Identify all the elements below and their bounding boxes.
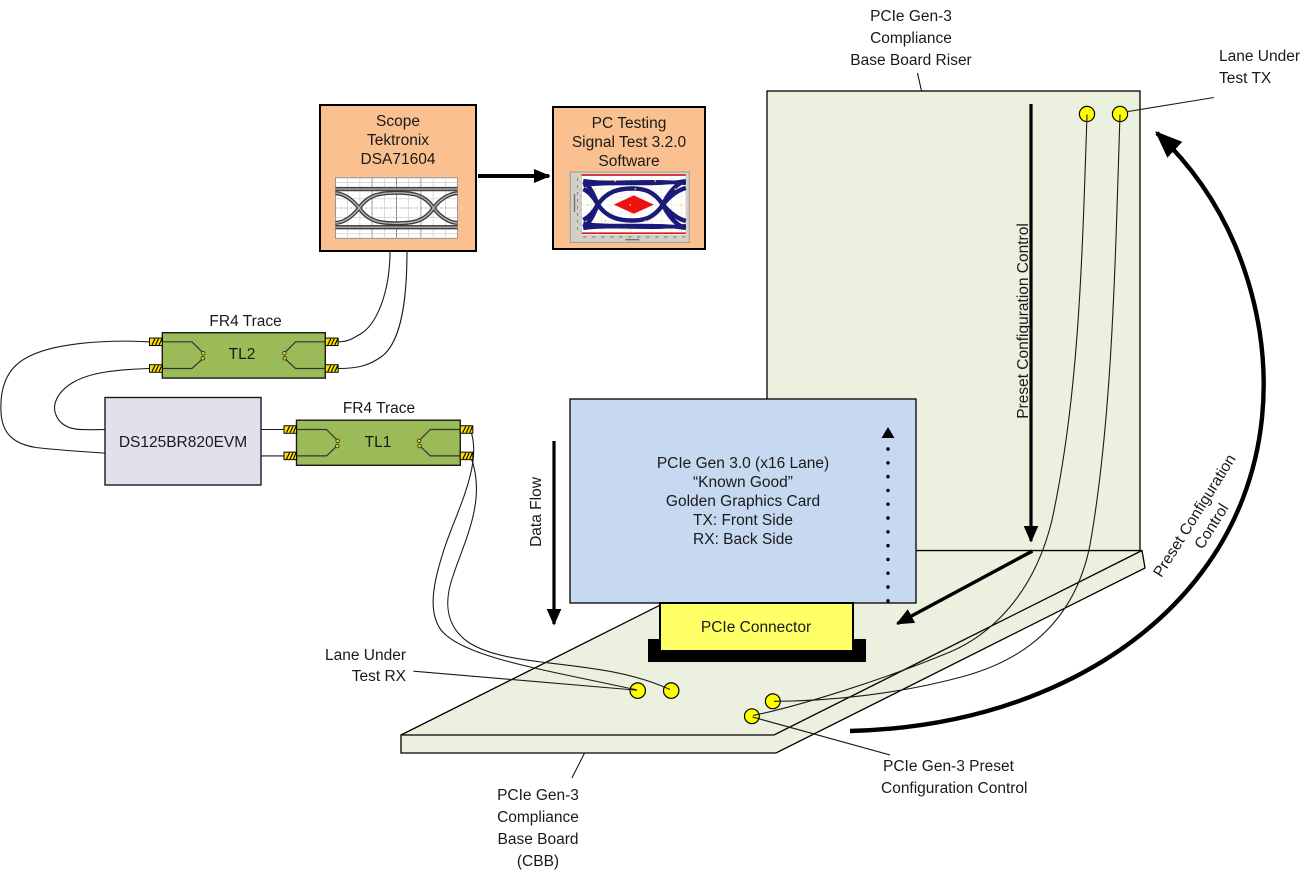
svg-text:Data Flow: Data Flow — [528, 476, 545, 547]
svg-text:TX: Front Side: TX: Front Side — [693, 512, 793, 529]
svg-text:Compliance: Compliance — [497, 809, 579, 826]
svg-text:Lane Under: Lane Under — [325, 647, 406, 664]
svg-text:Preset Configuration Control: Preset Configuration Control — [1015, 223, 1032, 419]
svg-text:Scope: Scope — [376, 113, 420, 130]
svg-text:Signal Test 3.2.0: Signal Test 3.2.0 — [572, 134, 687, 151]
svg-text:Base Board Riser: Base Board Riser — [850, 52, 971, 69]
svg-text:Compliance: Compliance — [870, 30, 952, 47]
svg-text:Base Board: Base Board — [498, 831, 579, 848]
svg-text:Test RX: Test RX — [352, 668, 407, 685]
svg-text:DSA71604: DSA71604 — [361, 151, 436, 168]
svg-text:Configuration Control: Configuration Control — [881, 780, 1027, 797]
svg-text:PCIe Gen-3: PCIe Gen-3 — [870, 8, 952, 25]
svg-text:PCIe Gen 3.0 (x16 Lane): PCIe Gen 3.0 (x16 Lane) — [657, 455, 829, 472]
svg-text:FR4 Trace: FR4 Trace — [209, 313, 281, 330]
svg-text:DS125BR820EVM: DS125BR820EVM — [119, 434, 247, 451]
svg-text:Lane Under: Lane Under — [1219, 48, 1300, 65]
svg-text:FR4 Trace: FR4 Trace — [343, 400, 415, 417]
svg-text:Test TX: Test TX — [1219, 70, 1272, 87]
svg-text:Golden Graphics Card: Golden Graphics Card — [666, 493, 820, 510]
svg-text:(CBB): (CBB) — [517, 853, 559, 870]
svg-text:Tektronix: Tektronix — [367, 132, 429, 149]
svg-text:“Known Good”: “Known Good” — [693, 474, 793, 491]
svg-text:PC Testing: PC Testing — [592, 115, 667, 132]
svg-text:PCIe Gen-3: PCIe Gen-3 — [497, 787, 579, 804]
svg-text:RX: Back Side: RX: Back Side — [693, 531, 793, 548]
svg-text:TL2: TL2 — [229, 346, 256, 363]
svg-text:PCIe Connector: PCIe Connector — [701, 619, 811, 636]
svg-text:Software: Software — [598, 153, 659, 170]
svg-text:PCIe Gen-3 Preset: PCIe Gen-3 Preset — [883, 758, 1015, 775]
svg-text:TL1: TL1 — [365, 434, 392, 451]
